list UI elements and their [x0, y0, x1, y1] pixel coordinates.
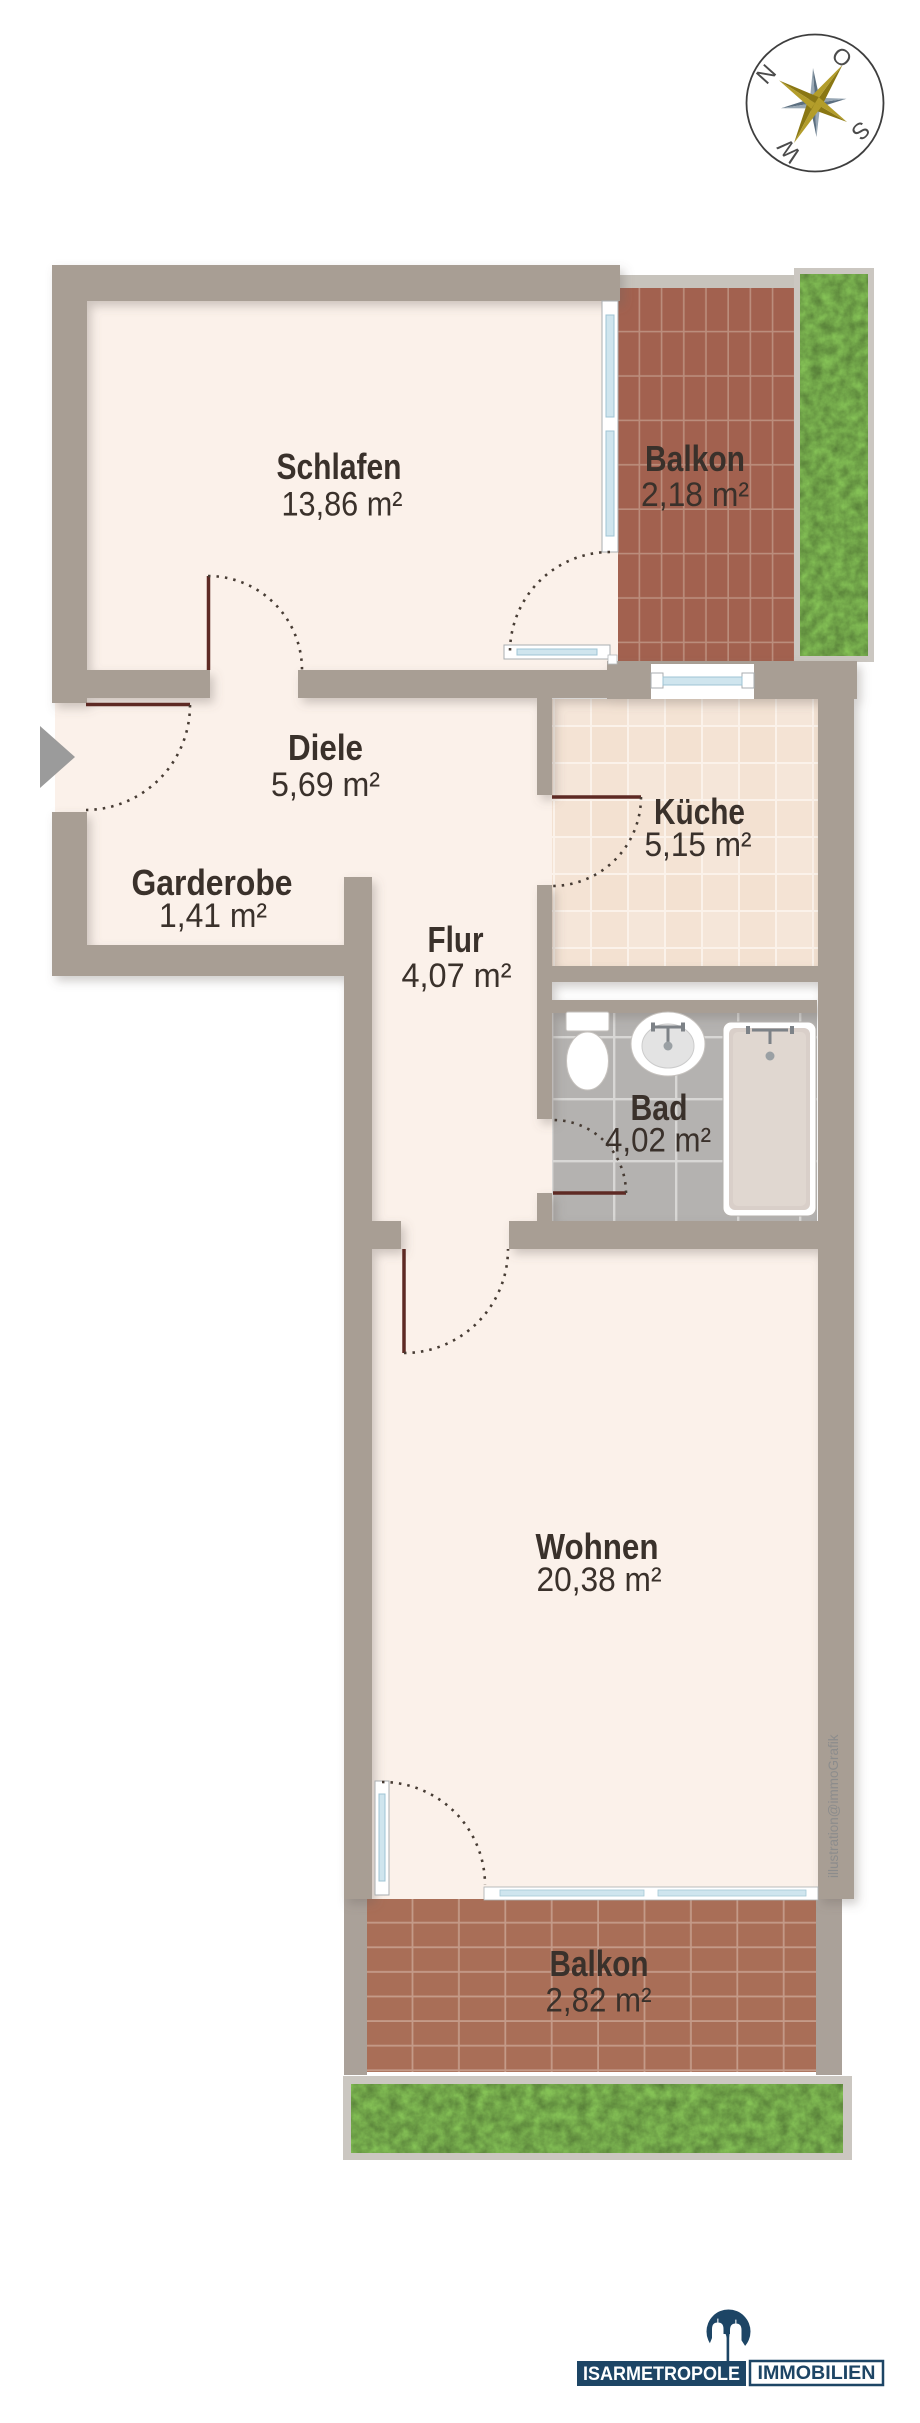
svg-text:ISARMETROPOLE: ISARMETROPOLE	[583, 2364, 740, 2385]
svg-text:2,82 m²: 2,82 m²	[546, 1982, 652, 2020]
svg-text:5,69 m²: 5,69 m²	[271, 766, 380, 804]
svg-text:Balkon: Balkon	[550, 1943, 649, 1984]
svg-text:Balkon: Balkon	[645, 438, 745, 479]
svg-text:1,41 m²: 1,41 m²	[159, 897, 267, 935]
svg-text:Schlafen: Schlafen	[277, 446, 402, 487]
svg-text:4,07 m²: 4,07 m²	[402, 957, 512, 995]
svg-text:5,15 m²: 5,15 m²	[645, 826, 752, 864]
svg-text:Diele: Diele	[288, 727, 363, 768]
svg-text:2,18 m²: 2,18 m²	[641, 476, 749, 514]
svg-text:20,38 m²: 20,38 m²	[537, 1561, 662, 1599]
svg-text:IMMOBILIEN: IMMOBILIEN	[758, 2363, 876, 2384]
svg-text:13,86 m²: 13,86 m²	[282, 486, 403, 524]
svg-text:illustration@immoGrafik: illustration@immoGrafik	[826, 1734, 841, 1878]
svg-text:Flur: Flur	[428, 919, 484, 960]
svg-text:4,02 m²: 4,02 m²	[605, 1122, 711, 1160]
